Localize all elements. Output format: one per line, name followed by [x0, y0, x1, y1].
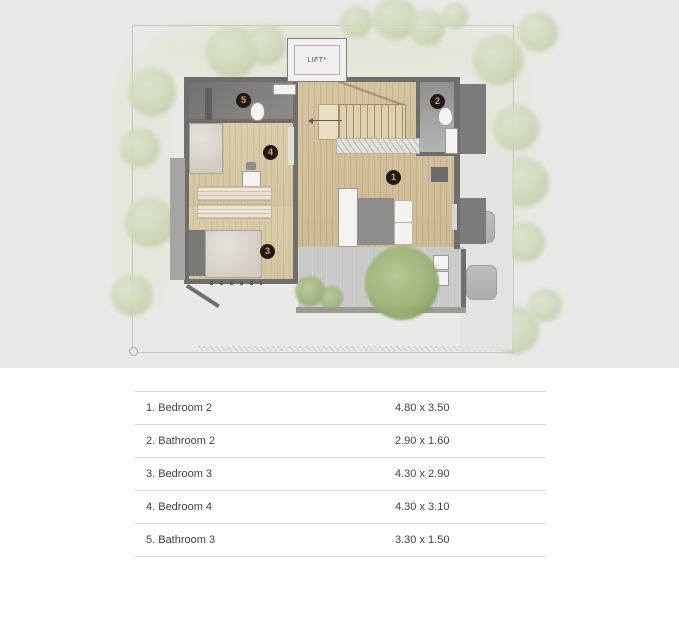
wardrobe-icon — [197, 186, 272, 201]
terrace-wall — [461, 249, 466, 311]
tree-icon — [473, 35, 523, 85]
room-size: 4.30 x 2.90 — [395, 468, 449, 480]
shower-partition — [205, 88, 212, 120]
room-marker-4: 4 — [263, 145, 278, 160]
cabinet-icon — [431, 167, 448, 182]
stair-void-line — [338, 82, 404, 105]
bed-icon — [189, 123, 223, 174]
tree-icon — [111, 274, 153, 316]
stair-direction-line — [312, 120, 342, 121]
roof-band — [460, 198, 486, 244]
vanity-counter — [273, 84, 296, 95]
boundary-corner-marker — [129, 347, 138, 356]
room-size: 2.90 x 1.60 — [395, 435, 449, 447]
legend-row: 3. Bedroom 3 4.30 x 2.90 — [135, 457, 546, 490]
legend-row: 5. Bathroom 3 3.30 x 1.50 — [135, 523, 546, 557]
room-name: 4. Bedroom 4 — [135, 501, 212, 513]
window-mullions — [210, 281, 262, 285]
floor-plan-page: LIFT* 1 2 3 4 5 1. Bedroom 2 4.80 x 3.50… — [0, 0, 679, 640]
room-marker-2: 2 — [430, 94, 445, 109]
tree-icon — [319, 286, 343, 310]
room-name: 1. Bedroom 2 — [135, 402, 212, 414]
room-name: 3. Bedroom 3 — [135, 468, 212, 480]
room-name: 2. Bathroom 2 — [135, 435, 215, 447]
room-size: 3.30 x 1.50 — [395, 534, 449, 546]
lift-shaft: LIFT* — [287, 38, 347, 82]
tree-icon — [528, 288, 562, 322]
lift-label: LIFT* — [307, 57, 326, 64]
legend-row: 2. Bathroom 2 2.90 x 1.60 — [135, 424, 546, 457]
wall-niche — [452, 204, 457, 230]
tree-icon — [246, 25, 286, 65]
wardrobe-icon — [338, 188, 358, 247]
legend-row: 4. Bedroom 4 4.30 x 3.10 — [135, 490, 546, 523]
car-icon — [466, 265, 497, 300]
stair-railing — [336, 138, 420, 154]
tree-icon — [125, 197, 175, 247]
room-size: 4.30 x 3.10 — [395, 501, 449, 513]
pillow — [394, 200, 413, 223]
legend-row: 1. Bedroom 2 4.80 x 3.50 — [135, 391, 546, 424]
room-size: 4.80 x 3.50 — [395, 402, 449, 414]
tree-icon — [442, 3, 468, 29]
bed-icon — [357, 198, 394, 245]
tree-icon — [120, 128, 160, 168]
bed-icon — [205, 230, 262, 278]
tree-icon — [128, 68, 176, 116]
sink-icon — [445, 128, 458, 154]
stair-direction-arrow — [308, 118, 313, 124]
room-marker-5: 5 — [236, 93, 251, 108]
roof-band — [460, 84, 486, 154]
legend-table: 1. Bedroom 2 4.80 x 3.50 2. Bathroom 2 2… — [135, 391, 546, 557]
tree-icon — [340, 6, 372, 38]
tree-icon — [518, 12, 558, 52]
toilet-icon — [438, 107, 453, 126]
room-marker-1: 1 — [386, 170, 401, 185]
tree-icon — [409, 10, 445, 46]
driveway — [460, 156, 512, 350]
tree-icon — [493, 105, 539, 151]
wardrobe-icon — [197, 204, 272, 219]
toilet-icon — [250, 102, 265, 121]
room-marker-3: 3 — [260, 244, 275, 259]
tree-icon — [365, 246, 439, 320]
headboard — [189, 230, 205, 276]
awning-left — [170, 158, 185, 280]
lift-cab: LIFT* — [294, 45, 340, 75]
pillow — [394, 222, 413, 245]
chair-icon — [246, 162, 256, 170]
door-leaf — [288, 127, 294, 165]
room-name: 5. Bathroom 3 — [135, 534, 215, 546]
stair-landing — [318, 104, 340, 140]
stairs-icon — [338, 104, 406, 140]
wall-segment — [293, 77, 298, 281]
